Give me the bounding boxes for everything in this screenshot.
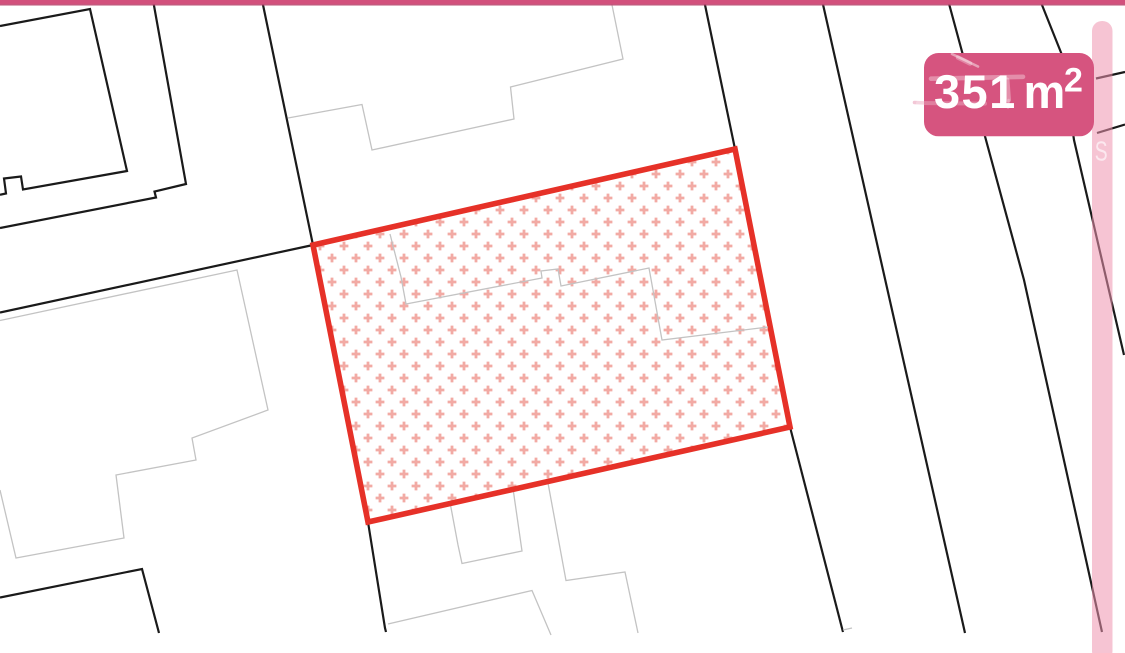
svg-text:m: m [1024,65,1066,118]
svg-text:S: S [1095,137,1108,167]
svg-text:2: 2 [1064,62,1083,100]
svg-text:351: 351 [934,65,1017,118]
